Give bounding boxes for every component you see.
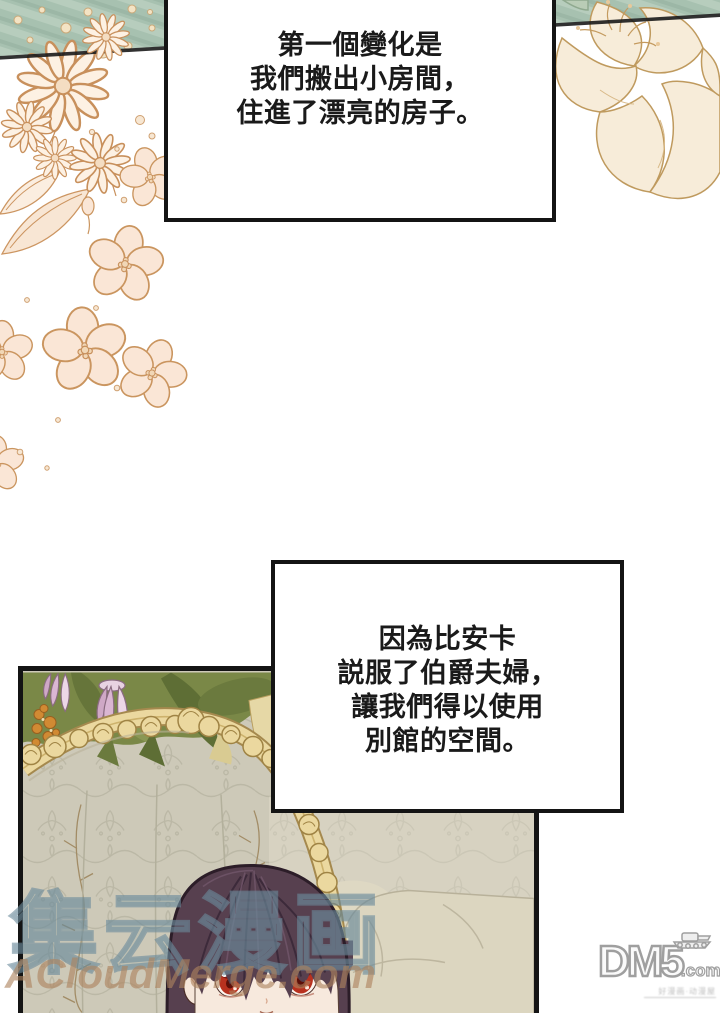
watermark-english: ACloudMerge.com (5, 950, 376, 998)
narration-line: 住進了漂亮的房子。 (168, 96, 552, 130)
dm5-caption: 好漫画·动漫屋 (644, 986, 716, 998)
comic-page: 第一個變化是 我們搬出小房間， 住進了漂亮的房子。 因為比安卡 説服了伯爵夫婦，… (0, 0, 720, 1013)
dm5-domain-suffix: .com (681, 961, 720, 980)
narration-line: 我們搬出小房間， (168, 62, 552, 96)
top-right-flower (556, 0, 720, 198)
narration-line: 讓我們得以使用 (275, 690, 620, 724)
narration-line: 第一個變化是 (168, 28, 552, 62)
narration-box-1: 第一個變化是 我們搬出小房間， 住進了漂亮的房子。 (164, 0, 556, 222)
narration-line: 因為比安卡 (275, 622, 620, 656)
dm5-vehicle-icon (668, 925, 716, 951)
narration-box-2: 因為比安卡 説服了伯爵夫婦， 讓我們得以使用 別館的空間。 (271, 560, 624, 813)
narration-line: 説服了伯爵夫婦， (275, 656, 620, 690)
dm5-logo: DM5.com 好漫画·动漫屋 (598, 938, 718, 998)
narration-line: 別館的空間。 (275, 724, 620, 758)
